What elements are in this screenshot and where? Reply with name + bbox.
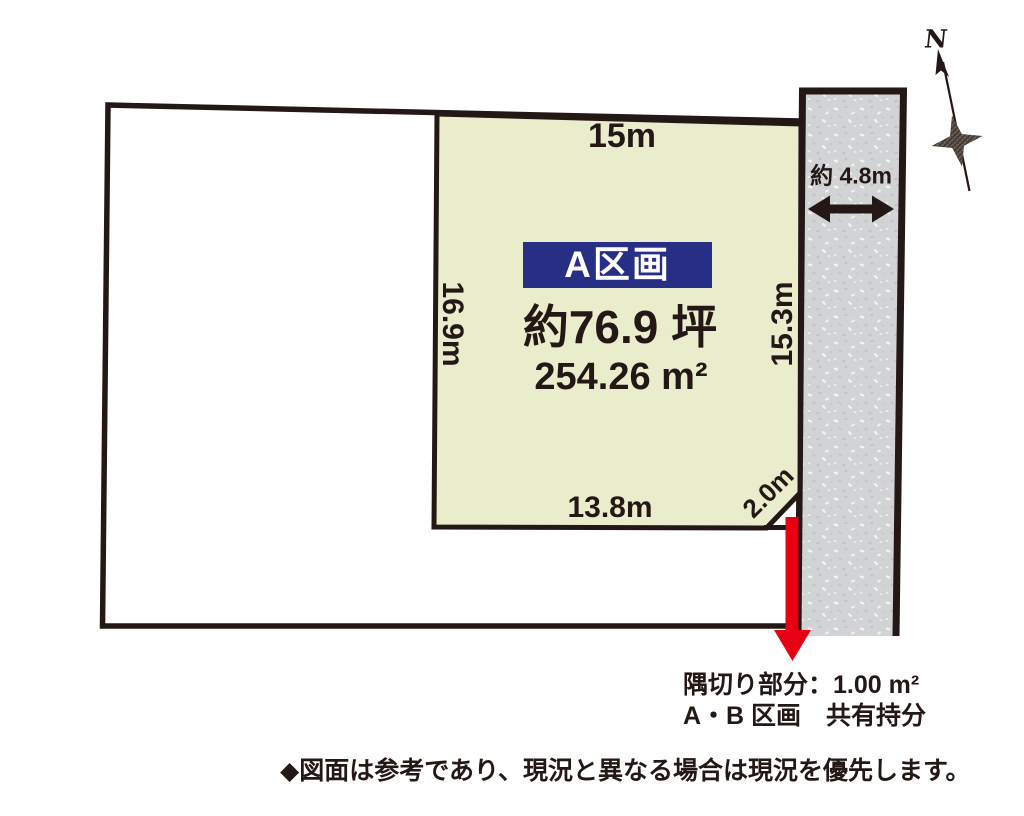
corner-cut-note: 隅切り部分：1.00 m² A・B 区画 共有持分 <box>683 670 926 732</box>
north-compass <box>932 49 983 191</box>
corner-cut-note-line2: A・B 区画 共有持分 <box>683 701 926 732</box>
compass-star-icon <box>932 116 983 167</box>
corner-cut-note-line1: 隅切り部分：1.00 m² <box>683 670 926 701</box>
compass-north-label: N <box>923 27 948 52</box>
plot-a-name-badge: A区画 <box>523 242 712 288</box>
disclaimer-footnote: ◆図面は参考であり、現況と異なる場合は現況を優先します。 <box>280 759 970 784</box>
dimension-top-label: 15m <box>588 119 656 153</box>
plot-a-area-tsubo: 約76.9 坪 <box>523 304 717 350</box>
plot-a-area-sqm: 254.26 m² <box>534 358 707 396</box>
land-plot-diagram: 15m 16.9m 15.3m 13.8m 2.0m 約 4.8m A区画 約7… <box>0 0 1024 816</box>
dimension-bottom-label: 13.8m <box>567 493 652 523</box>
dimension-left-label: 16.9m <box>437 281 467 366</box>
dimension-right-label: 15.3m <box>768 281 798 366</box>
road-width-label: 約 4.8m <box>810 165 892 188</box>
